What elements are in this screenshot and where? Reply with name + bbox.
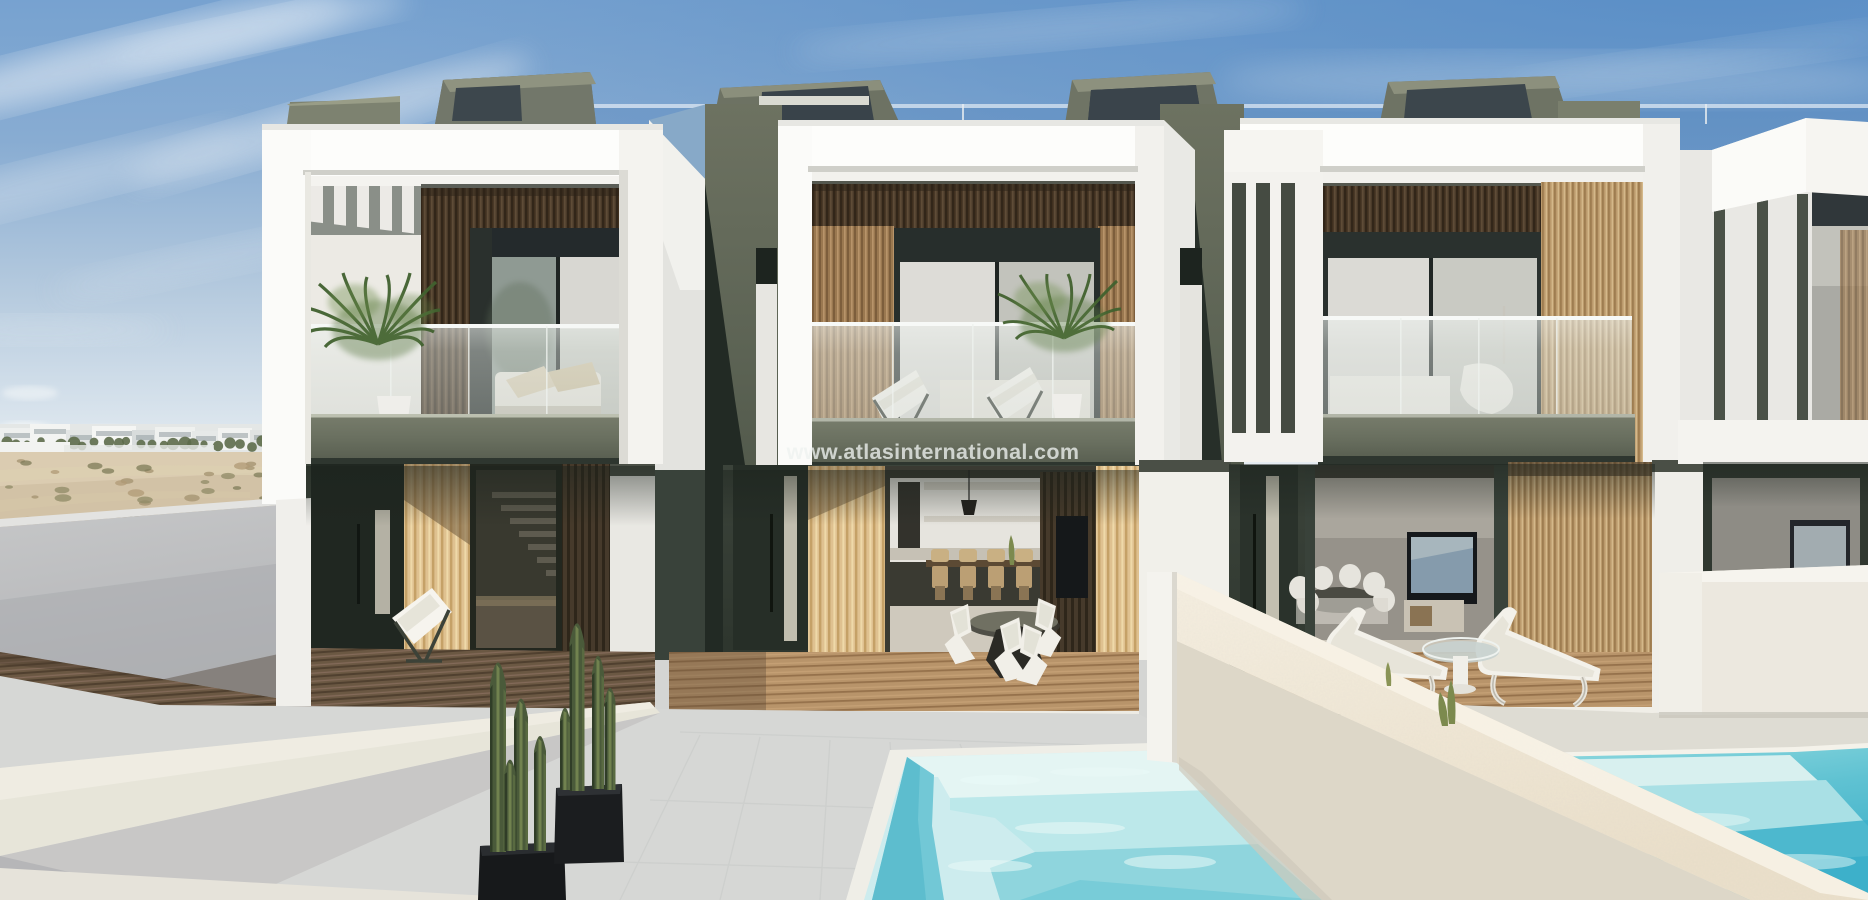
- svg-text:www.atlasinternational.com: www.atlasinternational.com: [786, 440, 1080, 464]
